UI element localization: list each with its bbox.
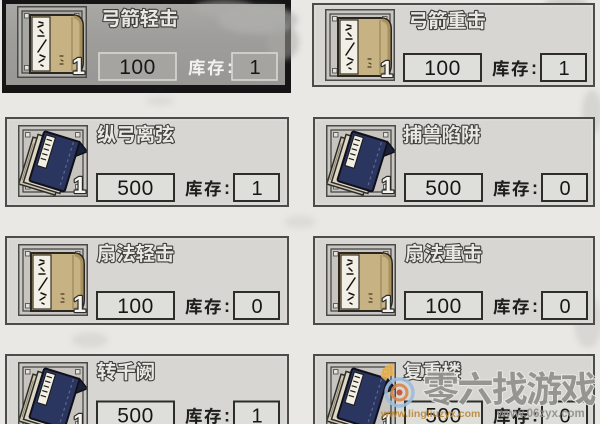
- svg-text:500: 500: [117, 405, 154, 424]
- svg-text:1: 1: [72, 53, 85, 79]
- svg-text:1: 1: [251, 406, 262, 424]
- svg-text:0: 0: [559, 178, 570, 200]
- svg-text::: :: [224, 178, 230, 198]
- svg-text:1: 1: [249, 57, 260, 79]
- svg-text:1: 1: [73, 291, 86, 317]
- svg-text:100: 100: [424, 57, 461, 80]
- svg-text:www.lingliuzyx.com: www.lingliuzyx.com: [380, 408, 480, 420]
- svg-text::: :: [224, 406, 230, 424]
- svg-text:100: 100: [425, 295, 462, 318]
- svg-text:0: 0: [559, 296, 570, 318]
- svg-text::: :: [532, 178, 538, 198]
- svg-text:500: 500: [425, 177, 462, 200]
- svg-text:500: 500: [117, 177, 154, 200]
- svg-text:1: 1: [381, 172, 394, 198]
- svg-text:1: 1: [251, 178, 262, 200]
- svg-text:100: 100: [117, 295, 154, 318]
- svg-text:100: 100: [119, 56, 156, 79]
- svg-text:1: 1: [380, 56, 393, 82]
- svg-text::: :: [531, 58, 537, 78]
- svg-text:1: 1: [73, 409, 86, 424]
- svg-text:1: 1: [73, 172, 86, 198]
- svg-text:www.06zyx.com: www.06zyx.com: [496, 408, 585, 420]
- svg-text:1: 1: [381, 291, 394, 317]
- svg-text:0: 0: [251, 296, 262, 318]
- svg-text::: :: [224, 296, 230, 316]
- svg-text::: :: [532, 296, 538, 316]
- svg-text:1: 1: [558, 58, 569, 80]
